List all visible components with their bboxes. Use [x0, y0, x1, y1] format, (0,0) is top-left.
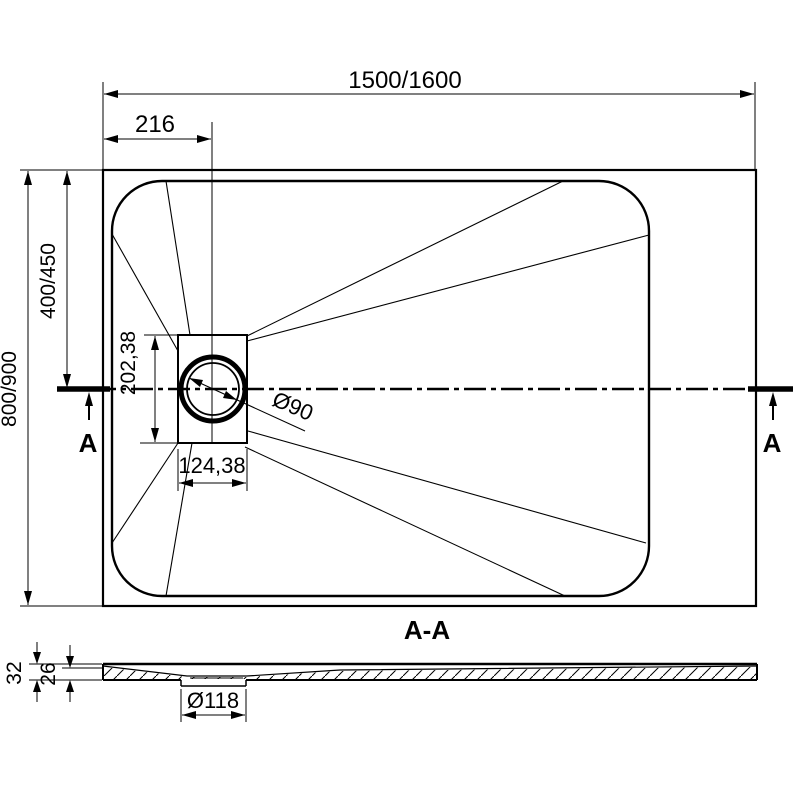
drain-box-width-value: 124,38: [178, 453, 245, 478]
overall-depth-value: 800/900: [0, 351, 21, 427]
drain-box-height-value: 202,38: [117, 331, 140, 395]
total-thickness-value: 32: [3, 661, 26, 684]
plan-view: A A 1500/1600 216: [0, 67, 793, 606]
section-label-left: A: [79, 428, 98, 458]
section-cut-marker-right: A: [748, 389, 793, 458]
drain-diameter-value: Ø90: [269, 386, 317, 425]
dim-overall-width: [103, 82, 755, 169]
shower-tray-drawing: A A 1500/1600 216: [0, 0, 800, 800]
section-arrow-up-icon: [769, 392, 777, 406]
dim-bottom-thickness: [62, 645, 102, 702]
drain-axis-offset-value: 400/450: [37, 243, 60, 319]
technical-drawing-page: A A 1500/1600 216: [0, 0, 800, 800]
drain-hole-diameter-value: Ø118: [187, 688, 239, 713]
section-title: A-A: [404, 615, 450, 645]
bottom-thickness-value: 26: [37, 662, 60, 685]
drain-offset-x-value: 216: [135, 111, 175, 138]
dim-drain-axis-offset: [63, 171, 71, 388]
overall-width-value: 1500/1600: [348, 67, 461, 94]
section-view: A-A 32: [3, 615, 757, 722]
section-label-right: A: [763, 428, 782, 458]
section-arrow-up-icon: [85, 392, 93, 406]
